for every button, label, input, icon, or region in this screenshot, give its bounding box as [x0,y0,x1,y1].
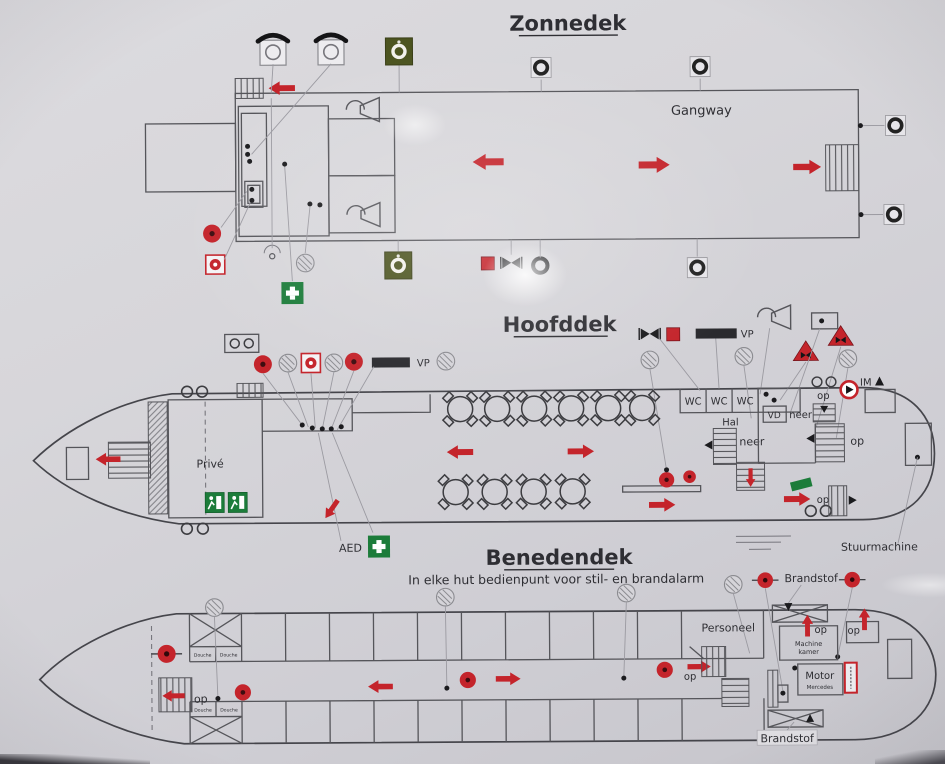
bar-counter [623,486,701,492]
store-room [758,388,800,412]
bow-locker [66,447,88,479]
hose-connection [481,257,522,270]
stairs-icon [713,428,736,464]
hoofddek-section: Hoofddek Privé VP VP [33,304,936,559]
left-triangle-icon [806,434,814,443]
bollard [181,523,192,534]
photo-edge-shadow [875,750,945,764]
hoofddek-title: Hoofddek [503,312,618,337]
first-aid-icon [368,536,390,558]
smoke-detector-icon [617,584,635,602]
escape-arrow-icon [368,680,393,693]
telephone-icon [258,35,288,65]
lifebuoy-sign-icon [385,252,412,279]
aed-label: AED [339,542,362,555]
vd-label: VD [768,411,781,421]
deck-plan-drawing: Zonnedek Gangway Hoofddek [0,0,945,764]
gangway-label: Gangway [671,103,732,118]
stairs-icon [722,678,749,706]
neer-label: neer [739,435,765,448]
stuurmachine-label: Stuurmachine [841,540,918,553]
op-label: op [814,625,827,636]
fire-bell-icon [659,472,674,487]
bollard [812,377,822,387]
wc-label: WC [685,397,702,408]
lifebuoy-icon [885,115,905,135]
fire-bell-icon [839,572,866,588]
benedendek-hull [39,609,936,744]
benedendek-subtitle: In elke hut bedienpunt voor stil- en bra… [408,571,704,588]
op-label: op [194,693,208,706]
brandstof-label: Brandstof [784,572,839,585]
lifebuoy-icon [533,258,547,272]
escape-arrow-icon [859,608,870,630]
vp-label: VP [741,329,754,340]
hatched-locker [768,670,778,707]
fire-bell-icon [235,684,251,700]
port-annex [145,123,235,192]
cabin-rows [189,610,764,744]
equipment-dots [245,123,864,221]
stairs-icon [826,145,859,191]
kamer-label: kamer [798,648,819,656]
benedendek-section: Benedendek In elke hut bedienpunt voor s… [39,543,936,749]
stern-tank [888,639,912,678]
up-triangle-icon [875,376,884,385]
fire-bell-icon [683,470,696,483]
escape-arrow-icon [568,444,594,458]
wc-label: WC [711,396,728,407]
bollard [197,386,208,397]
lifebuoy-icon [690,57,710,77]
machine-label: Machine [795,640,822,648]
exit-sign-icon [228,492,247,512]
zonnedek-section: Zonnedek Gangway [145,9,907,305]
stairs-icon [235,78,263,98]
equipment-dots [300,420,669,474]
ship-safety-plan-photo: Zonnedek Gangway Hoofddek [0,0,945,764]
motor-type-label: Mercedes [807,685,834,691]
deckhouse-lower [329,175,395,232]
douche-label: Douche [220,652,238,658]
fire-pump-icon [841,381,858,398]
escape-arrow-icon [473,154,504,170]
motor-label: Motor [805,671,835,682]
fire-bell-icon [151,645,182,663]
left-triangle-icon [704,441,712,450]
stairs-icon [237,383,263,397]
title-underline [519,35,618,36]
douche-label: Douche [194,708,212,714]
douche-label: Douche [194,653,212,659]
deckhouse-upper [328,118,394,175]
escape-arrow-icon [496,672,521,685]
smoke-detector-icon [296,254,314,272]
right-triangle-icon [849,496,857,505]
pipe-lines [736,536,791,549]
first-aid-icon [281,282,303,304]
escape-arrow-icon [793,160,821,175]
escape-arrow-icon [321,497,343,521]
smoke-detector-icon [206,599,224,617]
hal-label: Hal [722,417,739,428]
lifebuoy-icon [884,204,904,224]
title-underline [504,569,614,570]
fuel-tank [772,603,827,622]
title-underline [514,336,608,337]
personeel-label: Personeel [701,621,755,634]
op-label: op [817,391,830,402]
exit-sign-icon [790,477,813,491]
galley-walls [262,394,430,431]
fire-bell-icon [657,662,673,678]
escape-arrow-icon [784,492,810,506]
bollard [197,523,208,534]
photo-edge-shadow [0,754,150,764]
exit-sign-icon [205,493,224,513]
op-label: op [847,626,860,637]
lifebuoy-icon [687,258,707,278]
stern-cabin [865,389,895,412]
prive-label: Privé [196,458,224,471]
smoke-detector-icon [724,576,742,594]
lifebuoy-sign-icon [385,38,412,65]
neer-label: neer [789,410,813,421]
op-label: op [684,672,697,683]
lifebuoy-icon [531,58,551,78]
brandstof-label: Brandstof [760,732,815,745]
escape-arrow-icon [447,445,473,459]
hatched-wall [148,402,168,514]
stairs-icon [815,424,844,462]
call-point-icon [206,255,225,274]
zonnedek-title: Zonnedek [509,11,627,36]
fire-bell-icon [203,225,221,243]
vp-label: VP [417,358,430,369]
im-label: IM [860,378,872,389]
escape-arrow-icon [649,498,675,512]
horn-icon [347,203,380,227]
douche-label: Douche [220,707,238,713]
smoke-detector-icon [436,588,454,606]
op-label: op [850,435,864,448]
stairs-icon [829,486,847,516]
wheelhouse [238,106,329,237]
benedendek-title: Benedendek [486,545,634,570]
op-label: op [817,495,830,506]
wc-label: WC [737,396,754,407]
escape-arrow-icon [639,157,670,173]
fire-bell-icon [460,672,476,688]
bollard [805,506,816,517]
telephone-icon [316,35,346,65]
red-framed-sign [845,663,857,693]
fuel-tank [768,710,823,727]
bow-dashed-line [151,626,152,732]
fire-bell-icon [752,572,779,588]
stairs-icon [702,646,726,676]
bollard [182,386,193,397]
